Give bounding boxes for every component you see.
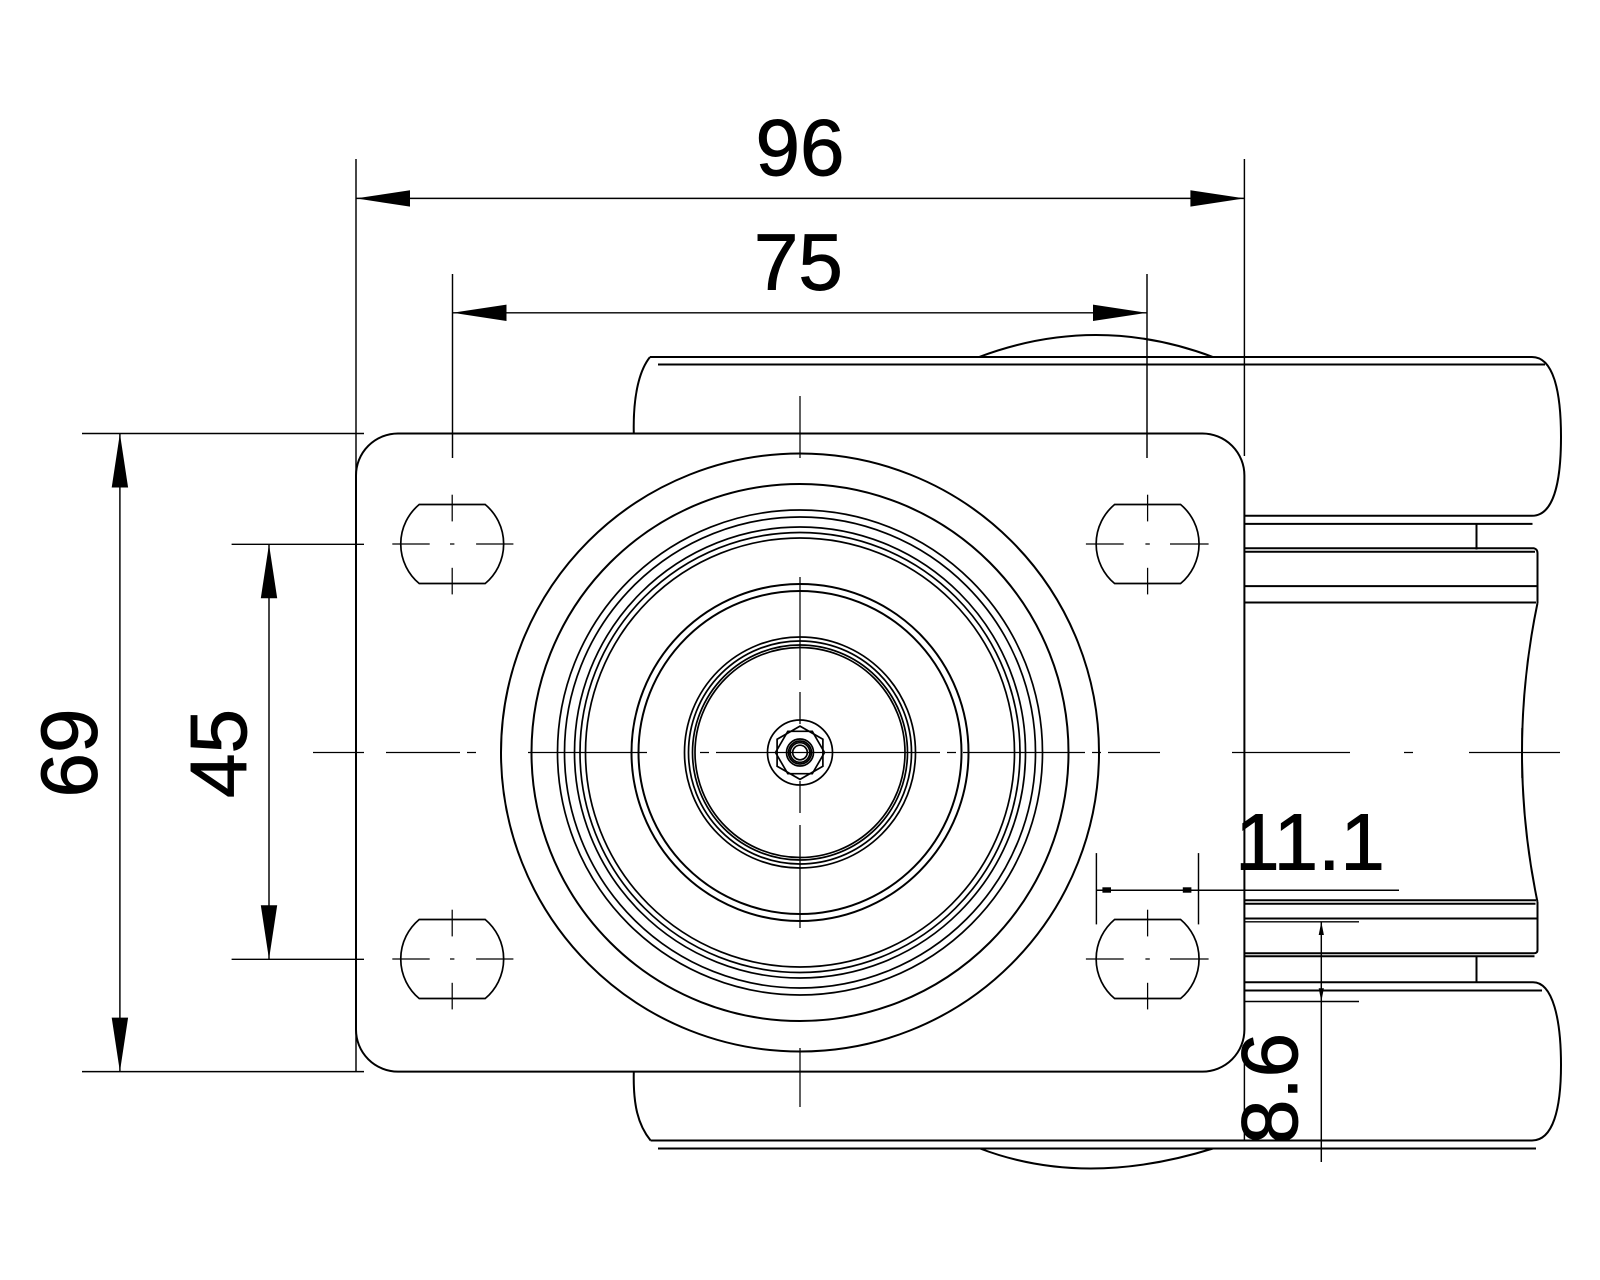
svg-text:96: 96 xyxy=(756,103,845,192)
svg-text:8.6: 8.6 xyxy=(1225,1033,1314,1144)
svg-text:11.1: 11.1 xyxy=(1235,797,1385,886)
svg-text:45: 45 xyxy=(174,709,263,798)
svg-text:69: 69 xyxy=(25,709,114,798)
svg-text:75: 75 xyxy=(754,217,843,306)
